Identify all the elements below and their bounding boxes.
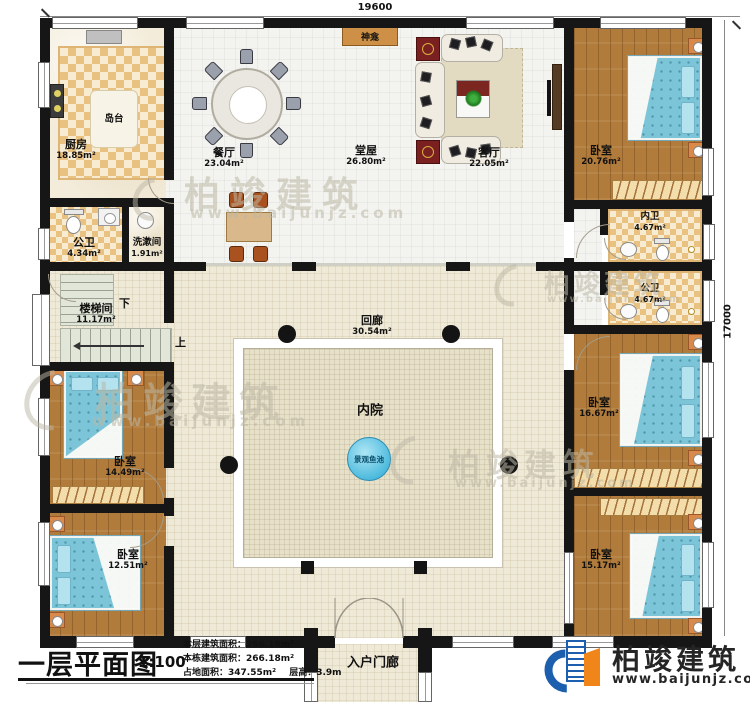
pillow [681, 102, 695, 134]
bed [628, 56, 702, 140]
stair-direction-arrow [76, 345, 144, 347]
column-round-4 [500, 456, 518, 474]
nightstand [48, 370, 65, 386]
pillow [681, 580, 695, 612]
wall-left-rooms-c [164, 546, 174, 636]
room-name: 堂屋 [346, 145, 385, 158]
shrine-cabinet: 神龛 [342, 26, 398, 46]
dimension-right: 17000 [723, 294, 734, 350]
stair-down-label: 下 [119, 295, 130, 311]
toilet [656, 245, 669, 261]
sofa-pillow [465, 36, 477, 48]
room-name: 洗漱间 [131, 238, 163, 249]
title-underline [18, 678, 314, 681]
room-area: 22.05m² [469, 159, 508, 169]
wall-right-main-d [564, 490, 574, 552]
dining-chair [240, 49, 253, 64]
column-square-2 [414, 561, 427, 574]
wall-stub-2 [292, 262, 316, 271]
coffee-table [456, 80, 490, 118]
wall-kitchen-bottom [40, 198, 174, 207]
shower-head [688, 246, 695, 253]
brand-logo-building-orange [584, 648, 600, 686]
toilet-tank [654, 238, 670, 244]
porch-pillar-right [418, 672, 432, 702]
room-name: 入户门廊 [347, 657, 399, 672]
tea-chair [229, 192, 244, 208]
window-top-3 [466, 17, 554, 29]
tv-screen [547, 80, 551, 116]
wall-bath2-bottom [574, 325, 712, 334]
room-name: 卧室 [581, 145, 620, 158]
room-name: 公卫 [67, 237, 101, 250]
toilet-tank [64, 209, 84, 215]
tea-table [226, 212, 272, 242]
room-label-bath2: 公卫 4.67m² [634, 284, 666, 304]
wall-right-main-b [564, 258, 574, 334]
room-area: 1.91m² [131, 249, 163, 258]
wardrobe [612, 180, 712, 200]
plan-title: 一层平面图 [18, 643, 158, 682]
room-label-bedroom-tr: 卧室 20.76m² [581, 145, 620, 167]
side-table-top [416, 37, 440, 61]
window-bedroom-br-left [564, 552, 574, 624]
room-label-island: 岛台 [104, 115, 123, 126]
room-label-bedroom-br: 卧室 15.17m² [581, 549, 620, 571]
title-underline-thin [26, 683, 314, 684]
room-name: 岛台 [104, 115, 123, 126]
toilet [66, 216, 81, 234]
bath1-sink [98, 208, 120, 226]
wall-stub-3 [446, 262, 470, 271]
room-label-washroom: 洗漱间 1.91m² [131, 238, 163, 258]
room-name: 楼梯间 [76, 303, 115, 316]
window-left-3 [38, 398, 50, 456]
pillow [57, 577, 71, 605]
window-right-2 [703, 224, 715, 260]
side-table-bottom [416, 140, 440, 164]
room-name: 卧室 [581, 549, 620, 562]
wall-porch-right [418, 628, 432, 672]
wall-stub-1 [174, 262, 206, 271]
nightstand [48, 516, 65, 532]
room-name: 餐厅 [204, 147, 243, 160]
wall-stair-bottom [40, 362, 174, 371]
entrance-double-door [334, 598, 404, 638]
wall-bottom-3 [403, 636, 418, 648]
room-area: 4.34m² [67, 249, 101, 259]
washroom-sink [137, 212, 154, 229]
wall-ml-bl-divider [40, 504, 174, 513]
window-left-2 [38, 228, 50, 260]
wall-stub-4 [536, 262, 564, 271]
room-label-bedroom-mr: 卧室 16.67m² [579, 397, 618, 419]
site-area-value: 占地面积：347.55m² [183, 668, 276, 678]
shrine-label: 神龛 [361, 30, 379, 43]
pillow [97, 377, 119, 391]
wall-right-main-a [564, 18, 574, 222]
nightstand [127, 370, 144, 386]
dimension-tick [732, 20, 741, 29]
room-area: 26.80m² [346, 157, 385, 167]
plan-scale: 1:100 [138, 653, 186, 671]
pillow [681, 544, 695, 576]
room-label-kitchen: 厨房 18.85m² [56, 139, 95, 161]
wall-kitchen-right [164, 18, 174, 180]
room-name: 卧室 [105, 456, 144, 469]
window-top-1 [52, 17, 138, 29]
room-name: 回廊 [352, 315, 391, 328]
room-name: 内卫 [634, 212, 666, 223]
window-left-1 [38, 62, 50, 108]
room-name: 厨房 [56, 139, 95, 152]
room-label-living: 客厅 22.05m² [469, 147, 508, 169]
stove [50, 84, 64, 118]
plant [465, 90, 482, 107]
room-label-bedroom-ml: 卧室 14.49m² [105, 456, 144, 478]
wall-bedroom-tr-bottom [574, 200, 712, 209]
sofa-pillow [420, 71, 432, 83]
fish-pond: 景观鱼池 [347, 437, 391, 481]
window-right-4 [702, 362, 714, 438]
dimension-line-top [40, 16, 740, 17]
window-left-bay [32, 294, 50, 366]
window-left-4 [38, 522, 50, 586]
window-top-2 [186, 17, 264, 29]
dining-chair [192, 97, 207, 110]
room-label-bath1: 公卫 4.34m² [67, 237, 101, 259]
room-area: 16.67m² [579, 409, 618, 419]
column-round-2 [442, 325, 460, 343]
brand-website: www.baijunjz.com [612, 672, 750, 687]
wall-bottom-2 [318, 636, 335, 648]
column-square-1 [301, 561, 314, 574]
wall-right-main-e [564, 624, 574, 636]
tea-chair [253, 246, 268, 262]
room-label-bedroom-bl: 卧室 12.51m² [108, 549, 147, 571]
room-label-hall: 堂屋 26.80m² [346, 145, 385, 167]
tea-chair [253, 192, 268, 208]
stair-up-label: 上 [175, 334, 186, 350]
room-label-dining: 餐厅 23.04m² [204, 147, 243, 169]
wardrobe [574, 468, 712, 488]
bed [620, 354, 702, 446]
site-area-line: 占地面积：347.55m² 层高：3.9m [183, 665, 342, 678]
wall-baths-bottom [40, 262, 178, 271]
room-name: 客厅 [469, 147, 508, 160]
wall-left-rooms-a [164, 366, 174, 468]
window-right-3 [703, 280, 715, 322]
dining-chair [286, 97, 301, 110]
room-area: 15.17m² [581, 561, 620, 571]
room-name: 内院 [357, 405, 383, 420]
window-right-1 [702, 148, 714, 196]
brand-logo-building-blue [566, 640, 586, 682]
toilet [656, 307, 669, 323]
window-right-5 [702, 542, 714, 608]
room-label-ensuite: 内卫 4.67m² [634, 212, 666, 232]
room-label-stairwell: 楼梯间 11.17m² [76, 303, 115, 325]
room-area: 20.76m² [581, 157, 620, 167]
room-name: 公卫 [634, 284, 666, 295]
dining-table [211, 68, 283, 140]
column-round-3 [220, 456, 238, 474]
dining-table-center [229, 86, 267, 124]
floor-height-value: 层高：3.9m [289, 668, 341, 678]
hall-threshold [206, 263, 536, 266]
shower-head [688, 308, 695, 315]
floor-area-line: 本层建筑面积：266.18m² [183, 637, 294, 650]
column-round-1 [278, 325, 296, 343]
bed [64, 370, 122, 458]
room-area: 14.49m² [105, 468, 144, 478]
room-name: 卧室 [579, 397, 618, 410]
pillow [57, 545, 71, 573]
room-area: 11.17m² [76, 315, 115, 325]
room-area: 23.04m² [204, 159, 243, 169]
tea-chair [229, 246, 244, 262]
room-area: 12.51m² [108, 561, 147, 571]
nightstand [48, 612, 65, 628]
room-area: 18.85m² [56, 151, 95, 161]
burner [54, 90, 61, 97]
building-area-line: 本栋建筑面积：266.18m² [183, 651, 294, 664]
room-name: 卧室 [108, 549, 147, 562]
tv-console [552, 64, 562, 130]
wall-mr-bottom [564, 488, 712, 496]
kitchen-sink [86, 30, 122, 44]
burner [54, 105, 61, 112]
wall-ensuite-bottom [574, 262, 712, 271]
room-area: 4.67m² [634, 295, 666, 304]
wall-washroom-right [164, 204, 174, 270]
window-top-4 [600, 17, 686, 29]
pond-label: 景观鱼池 [354, 454, 384, 465]
pillow [681, 66, 695, 98]
dimension-top: 19600 [340, 2, 410, 13]
bed [630, 534, 702, 618]
pillow [681, 404, 695, 438]
wall-bath1-divider [122, 207, 129, 264]
room-label-porch: 入户门廊 [347, 657, 399, 672]
wall-hallway-div-b [600, 271, 608, 295]
room-label-courtyard: 内院 [357, 405, 383, 420]
window-bottom-3 [452, 636, 514, 648]
pillow [71, 377, 93, 391]
room-label-corridor: 回廊 30.54m² [352, 315, 391, 337]
wall-right-main-c [564, 370, 574, 490]
room-area: 30.54m² [352, 327, 391, 337]
wall-stair-right [164, 271, 174, 323]
pillow [681, 366, 695, 400]
room-area: 4.67m² [634, 223, 666, 232]
floor-plan-page: 神龛 [0, 0, 750, 707]
